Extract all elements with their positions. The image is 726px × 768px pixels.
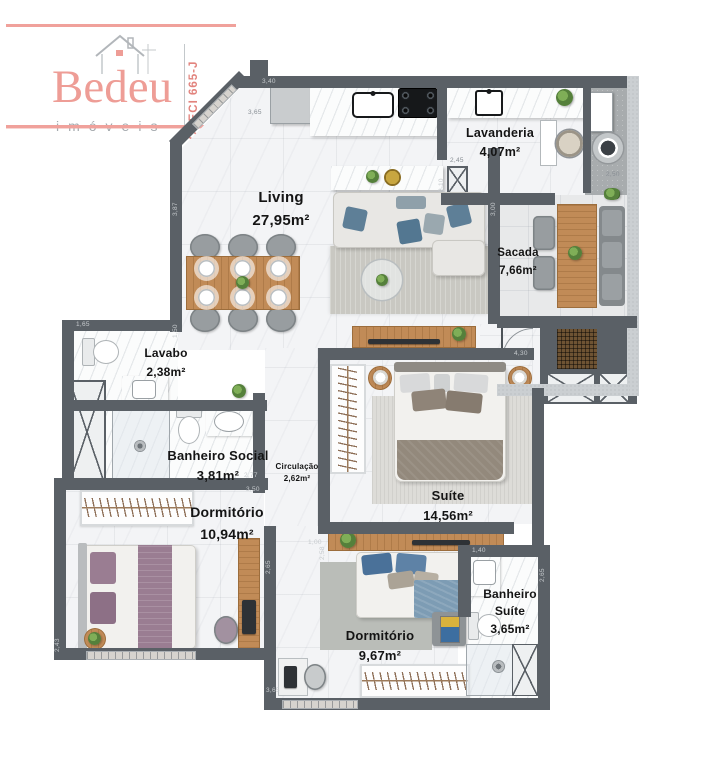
pillow-icon [342, 206, 368, 232]
pillow-icon [423, 213, 446, 236]
wall [237, 76, 627, 88]
plant-icon [556, 89, 573, 106]
wall [532, 388, 544, 555]
bed-blanket [397, 440, 503, 480]
duct-shaft-icon [447, 166, 468, 194]
plate-icon [270, 260, 287, 277]
plant-icon [366, 170, 379, 183]
room-label-sacada: Sacada 7,66m² [486, 245, 550, 281]
wall [62, 400, 267, 411]
laundry-sink-icon [475, 90, 503, 116]
pillow-icon [396, 218, 423, 245]
room-label-lavabo: Lavabo 2,38m² [118, 344, 214, 381]
dim-label: 2,43 [55, 638, 62, 652]
dim-label: 3,65 [248, 110, 262, 117]
lamp-icon [512, 370, 527, 385]
headboard [394, 362, 506, 372]
room-label-circulacao: Circulação 2,62m² [256, 461, 338, 486]
plant-icon [232, 384, 246, 398]
plant-icon [376, 274, 388, 286]
toilet-bowl [93, 340, 119, 364]
desk-icon [238, 538, 260, 654]
dim-label: 1,65 [76, 322, 90, 329]
plant-icon [88, 632, 101, 645]
floorplan-canvas: Bedeu imóveis CRECI 665-J [0, 0, 726, 768]
bench-cushion [602, 274, 622, 300]
dim-label: 4,30 [514, 351, 528, 358]
plant-icon [568, 246, 582, 260]
wall [441, 193, 555, 205]
pillow-icon [411, 388, 447, 411]
wall [250, 60, 268, 78]
kitchen-sink-icon [352, 92, 394, 118]
dim-label: 2,45 [450, 158, 464, 165]
plate-icon [234, 260, 251, 277]
room-label-living: Living 27,95m² [225, 186, 337, 233]
room-label-suite: Suíte 14,56m² [398, 486, 498, 526]
wall [264, 526, 276, 710]
dim-label: 2,65 [540, 568, 547, 582]
wardrobe-icon [360, 664, 470, 698]
wall [488, 148, 500, 324]
balcony-parapet [497, 384, 629, 396]
plant-icon [236, 276, 249, 289]
service-cabinet [590, 92, 613, 132]
sofa-chaise-icon [432, 240, 485, 276]
bed-runner [138, 545, 172, 649]
cooktop-icon [398, 88, 438, 118]
dim-label: 3,00 [491, 202, 498, 216]
toilet-bowl [178, 416, 200, 444]
wall [497, 316, 637, 328]
dim-label: 2,50 [606, 172, 620, 179]
pillow-icon [90, 552, 116, 584]
wall [322, 348, 534, 360]
pillow-icon [361, 552, 393, 575]
balcony-parapet [627, 76, 639, 396]
dim-label: 1,50 [173, 324, 180, 338]
pillow-icon [453, 373, 488, 393]
desk-chair-icon [214, 616, 238, 644]
plant-icon [452, 327, 466, 341]
monitor-icon [242, 600, 256, 634]
wall [170, 140, 182, 332]
room-label-banheiro-suite: Banheiro Suíte 3,65m² [468, 586, 552, 638]
laptop-icon [284, 666, 297, 688]
wall [54, 478, 66, 660]
pillow-icon [90, 592, 116, 624]
bench-cushion [602, 242, 622, 268]
dim-label: 2,65 [266, 560, 273, 574]
hallway-floor [265, 348, 318, 526]
pillow-icon [396, 196, 426, 209]
room-label-dormitorio-2: Dormitório 9,67m² [312, 626, 448, 666]
grill-icon [554, 326, 600, 372]
fruit-bowl-icon [384, 169, 401, 186]
tv-icon [368, 339, 440, 344]
pillow-icon [445, 390, 483, 414]
wall [583, 88, 591, 193]
shower-head-icon [134, 440, 146, 452]
desk-chair-icon [304, 664, 326, 690]
washbasin-icon [132, 380, 156, 399]
dim-label: 1,40 [472, 548, 486, 555]
floorplan: Living 27,95m² Lavanderia 4,07m² Sacada … [0, 0, 726, 768]
dim-label: 3,87 [173, 202, 180, 216]
wall [318, 348, 330, 533]
washbasin-icon [473, 560, 496, 585]
laundry-basket-icon [556, 130, 583, 157]
dim-label: 2,77 [244, 473, 258, 480]
window-icon [86, 651, 196, 660]
plate-icon [270, 289, 287, 306]
bench-cushion [602, 210, 622, 236]
room-label-dormitorio-1: Dormitório 10,94m² [158, 502, 296, 545]
dim-label: 3,50 [246, 487, 260, 494]
dim-label: 2,10 [439, 178, 446, 192]
wardrobe-icon [330, 364, 366, 474]
lamp-icon [373, 370, 388, 385]
window-icon [282, 700, 358, 709]
plate-icon [198, 260, 215, 277]
shower-head-icon [492, 660, 505, 673]
plate-icon [234, 289, 251, 306]
plant-icon [604, 188, 620, 200]
dim-label: 3,65 [266, 688, 280, 695]
shower-door [512, 644, 538, 696]
plant-icon [340, 532, 356, 548]
dim-label: 3,40 [262, 79, 276, 86]
washer-icon [593, 133, 623, 163]
refrigerator-icon [270, 82, 312, 124]
plate-icon [198, 289, 215, 306]
washbasin-icon [214, 411, 244, 432]
dim-label: 2,58 [320, 546, 327, 560]
